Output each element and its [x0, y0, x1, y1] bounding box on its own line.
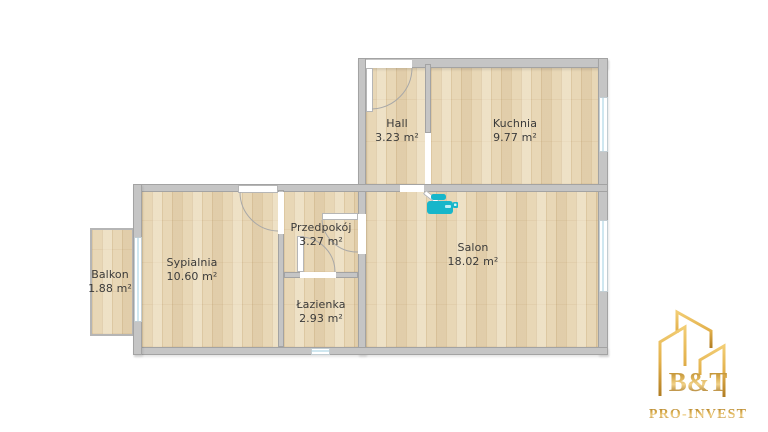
room-area: 1.88 m²: [70, 282, 150, 296]
window-glass: [312, 350, 329, 352]
room-name: Sypialnia: [142, 256, 242, 270]
window-kuchnia: [599, 97, 608, 152]
room-name: Salon: [413, 241, 533, 255]
window-glass: [602, 221, 604, 291]
room-label-salon: Salon 18.02 m²: [413, 241, 533, 269]
room-name: Łazienka: [281, 298, 361, 312]
room-area: 18.02 m²: [413, 255, 533, 269]
room-name: Kuchnia: [465, 117, 565, 131]
door-opening-lazienka: [300, 272, 336, 278]
room-area: 2.93 m²: [281, 312, 361, 326]
room-area: 3.23 m²: [357, 131, 437, 145]
room-label-kuchnia: Kuchnia 9.77 m²: [465, 117, 565, 145]
room-name: Hall: [357, 117, 437, 131]
room-area: 9.77 m²: [465, 131, 565, 145]
room-floor-salon: [366, 192, 598, 347]
logo-title: B&T: [669, 367, 728, 397]
window-lazienka: [311, 348, 330, 355]
room-label-przedpokoj: Przedpokój 3.27 m²: [281, 221, 361, 249]
door-leaf-entrance: [366, 68, 373, 112]
room-label-hall: Hall 3.23 m²: [357, 117, 437, 145]
room-area: 10.60 m²: [142, 270, 242, 284]
window-glass: [602, 98, 604, 151]
logo-subtitle: PRO-INVEST: [649, 407, 747, 422]
room-name: Balkon: [70, 268, 150, 282]
wall-mid-horizontal: [133, 184, 608, 192]
room-label-sypialnia: Sypialnia 10.60 m²: [142, 256, 242, 284]
floorplan-canvas: Balkon 1.88 m² Sypialnia 10.60 m² Przedp…: [0, 0, 768, 432]
room-label-lazienka: Łazienka 2.93 m²: [281, 298, 361, 326]
wall-bottom: [133, 347, 608, 355]
door-leaf-przedpokoj: [322, 213, 358, 220]
door-opening-entrance: [366, 60, 412, 68]
camera-3d-marker-icon[interactable]: [426, 193, 458, 215]
room-area: 3.27 m²: [281, 235, 361, 249]
room-label-balkon: Balkon 1.88 m²: [70, 268, 150, 296]
logo-graphic: B&T PRO-INVEST: [628, 292, 768, 432]
door-opening-hall-salon: [400, 185, 424, 192]
door-leaf-sypialnia: [238, 185, 278, 193]
company-logo: B&T PRO-INVEST: [628, 292, 768, 432]
window-salon: [599, 220, 608, 292]
room-name: Przedpokój: [281, 221, 361, 235]
